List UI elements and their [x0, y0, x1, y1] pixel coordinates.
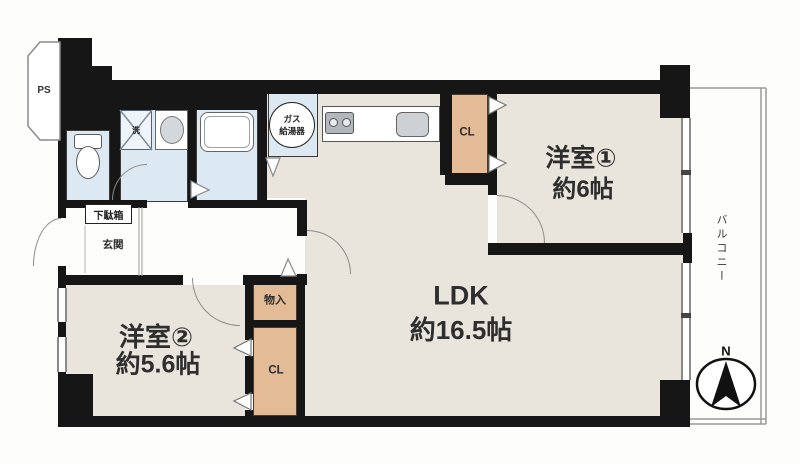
- closet-bottom-door-mark-2: [234, 393, 251, 410]
- closet-top-door-mark-1: [489, 97, 506, 114]
- ldk-name: LDK: [433, 283, 489, 310]
- storage-label: 物入: [264, 296, 286, 307]
- compass-n-label: N: [721, 345, 730, 358]
- bedroom1-size: 約6帖: [552, 178, 613, 202]
- closet-top-door-mark-2: [489, 155, 506, 172]
- bathroom-door-mark: [191, 181, 209, 198]
- gas-space-door-mark: [266, 158, 280, 176]
- closet-top-label: CL: [459, 127, 474, 139]
- shoe-cabinet-label: 下駄箱: [85, 204, 132, 224]
- ldk-size: 約16.5帖: [410, 317, 513, 343]
- balcony-label: バルコニー: [713, 214, 729, 284]
- plan-overlay: [0, 0, 800, 464]
- gas-heater-circle: ガス 給湯器: [269, 102, 315, 148]
- genkan-label: 玄関: [103, 240, 124, 251]
- closet-bottom-label: CL: [268, 365, 283, 377]
- ps-label: PS: [37, 86, 50, 96]
- gas-heater-label-line2: 給湯器: [279, 125, 305, 137]
- bedroom2-name: 洋室②: [119, 324, 193, 350]
- gas-heater-label-line1: ガス: [283, 113, 300, 125]
- floor-plan: 洗: [0, 0, 800, 464]
- bedroom2-size: 約5.6帖: [116, 353, 201, 378]
- bedroom1-name: 洋室①: [545, 147, 616, 172]
- closet-bottom-door-mark-1: [234, 339, 251, 356]
- step-mark: [281, 259, 296, 276]
- laundry-label: 洗: [132, 125, 140, 136]
